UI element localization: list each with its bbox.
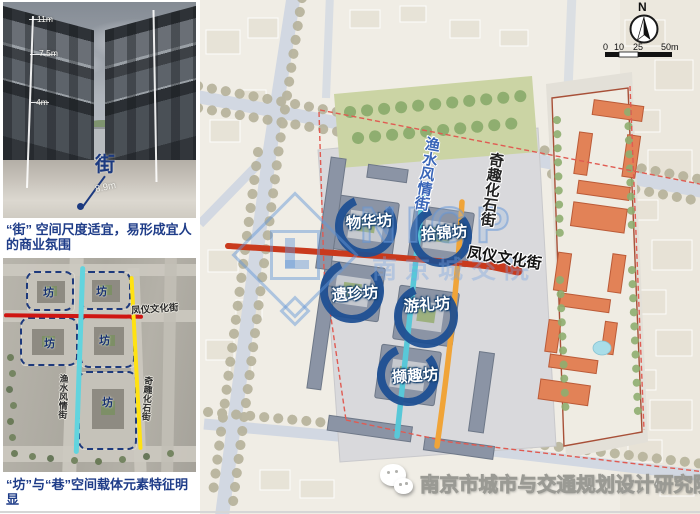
slide-bottom-rule <box>0 511 700 513</box>
aerial-qiqu-label: 奇趣化石街 <box>139 376 155 422</box>
scale-tick-25: 25 <box>633 42 643 52</box>
wechat-bubble-small <box>394 478 413 494</box>
watermark-glyph <box>285 260 309 269</box>
fang-label: 坊 <box>99 332 110 348</box>
aerial-trees <box>7 354 14 361</box>
north-arrow-icon <box>631 16 658 43</box>
dim-label-11m: 11m <box>37 14 53 24</box>
aerial-yushui-label: 渔水风情街 <box>56 374 71 419</box>
street-photo-caption: “街” 空间尺度适宜，易形成宜人的商业氛围 <box>6 222 193 252</box>
street-char-label: 街 <box>95 148 115 177</box>
street-annotation-dot <box>77 203 84 210</box>
wechat-eye <box>387 471 390 474</box>
aerial-trees <box>11 450 18 457</box>
aerial-caption: “坊”与“巷”空间载体元素特征明显 <box>6 477 193 507</box>
institute-watermark-text: 南京市城市与交通规划设计研究院 <box>420 468 700 497</box>
aerial-street <box>161 258 177 472</box>
master-plan-map: NICP 南京城交院 渔水风情街 奇趣化石街 凤仪文化街 物华坊 拾锦坊 遗珍坊… <box>200 0 700 514</box>
scale-tick-10: 10 <box>614 42 624 52</box>
scale-tick-50m: 50m <box>661 42 679 52</box>
fang-label: 坊 <box>44 335 55 351</box>
slide-canvas: 11m 7.5m 4m 街 8.9m “街” 空间尺度适宜，易形成宜人的商业氛围… <box>0 0 700 514</box>
fang-label: 坊 <box>96 283 107 299</box>
fang-boundary-dashed <box>78 371 137 450</box>
wechat-eye <box>399 483 402 486</box>
scale-bar <box>605 52 672 57</box>
aerial-figure: 坊 坊 坊 坊 坊 凤仪文化街 渔水风情街 奇趣化石街 <box>3 258 196 472</box>
watermark-diamond-inner <box>270 230 320 280</box>
dim-label-4m: 4m <box>36 97 48 107</box>
street-photo-figure: 11m 7.5m 4m 街 8.9m <box>3 2 196 218</box>
scale-tick-0: 0 <box>603 42 608 52</box>
wechat-eye <box>395 470 398 473</box>
fang-label: 坊 <box>43 284 54 300</box>
temple-pond <box>593 341 611 355</box>
dim-label-7-5m: 7.5m <box>39 48 58 58</box>
fang-label: 坊 <box>102 394 113 410</box>
wechat-eye <box>405 482 408 485</box>
north-label: N <box>638 0 647 14</box>
wechat-icon <box>380 460 418 502</box>
